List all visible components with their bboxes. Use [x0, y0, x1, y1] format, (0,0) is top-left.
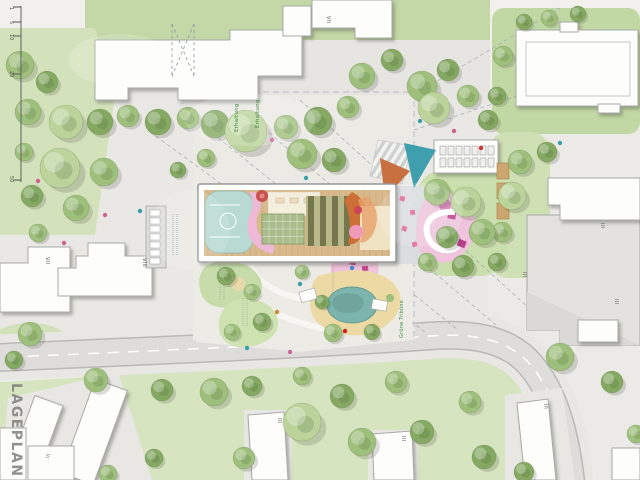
figure-mark: [479, 146, 483, 150]
window-cell: [456, 158, 462, 167]
figure-mark: [62, 241, 66, 245]
figure-mark: [245, 346, 249, 350]
figure-mark: [418, 119, 422, 123]
building-at-road-bend: [578, 320, 618, 342]
window-cell: [448, 158, 454, 167]
play-hut: [371, 299, 388, 311]
storey-label: III: [400, 436, 406, 441]
scale-tick: 50: [8, 176, 14, 182]
figure-mark: [36, 179, 40, 183]
utility-building: [434, 140, 498, 173]
bench: [497, 163, 509, 179]
storey-label: III: [521, 272, 527, 277]
window-cell: [456, 146, 462, 155]
magenta-mat: [362, 266, 369, 272]
window-cell: [480, 158, 486, 167]
sheet-title: LAGEPLAN: [8, 383, 24, 478]
window-cell: [464, 158, 470, 167]
building-bottom-corner-2: [28, 446, 74, 480]
bike-stall: [150, 258, 160, 264]
storey-label: III: [599, 223, 605, 228]
building-top-right-tab2: [598, 104, 620, 113]
figure-mark: [298, 282, 302, 286]
storey-label: III: [542, 403, 549, 409]
window-cell: [472, 146, 478, 155]
window-cell: [440, 146, 446, 155]
scale-tick: 10: [8, 34, 14, 40]
figure-mark: [452, 129, 456, 133]
tree-preservation-label: Erhaltung: [255, 100, 261, 128]
window-cell: [472, 158, 478, 167]
green-tribune-label: Grüne Tribüne: [399, 300, 405, 338]
storey-label: VII: [325, 16, 331, 23]
figure-mark: [288, 350, 292, 354]
site-plan-sheet: 1 5 10 20 50 VII VII VIII III III III II…: [0, 0, 640, 480]
storey-label: VIII: [141, 258, 147, 267]
building-top-right-slab: [516, 30, 638, 106]
figure-mark: [138, 209, 142, 213]
site-plan-drawing: 1 5 10 20 50 VII VII VIII III III III II…: [0, 0, 640, 480]
table: [276, 198, 284, 203]
pond-texture: [332, 293, 364, 313]
window-cell: [464, 146, 470, 155]
window-cell: [440, 158, 446, 167]
figure-mark: [275, 310, 279, 314]
table: [290, 198, 298, 203]
storey-label: III: [613, 299, 619, 304]
figure-mark: [350, 266, 354, 270]
planting-dot: [386, 294, 394, 302]
tree-preservation-label: Erhaltung: [234, 104, 240, 132]
building-bottom-right-small: [612, 448, 640, 480]
figure-mark: [558, 141, 562, 145]
window-cell: [448, 146, 454, 155]
building-right-white: [548, 178, 640, 220]
figure-mark: [304, 176, 308, 180]
figure-mark: [103, 213, 107, 217]
scale-tick: 20: [8, 71, 14, 77]
storey-label: III: [276, 418, 282, 423]
red-umbrella: [354, 206, 362, 214]
building-top-right-tab: [560, 22, 578, 32]
scale-tick: 1: [8, 7, 14, 10]
pink-play-circle: [349, 225, 363, 239]
umbrella-top: [260, 194, 265, 199]
building-top-small: [283, 6, 311, 36]
building-bottom-center-2: [372, 431, 414, 480]
figure-mark: [343, 329, 347, 333]
storey-label: VII: [44, 257, 50, 264]
scale-tick: 5: [8, 21, 14, 24]
window-cell: [488, 158, 494, 167]
window-cell: [488, 146, 494, 155]
